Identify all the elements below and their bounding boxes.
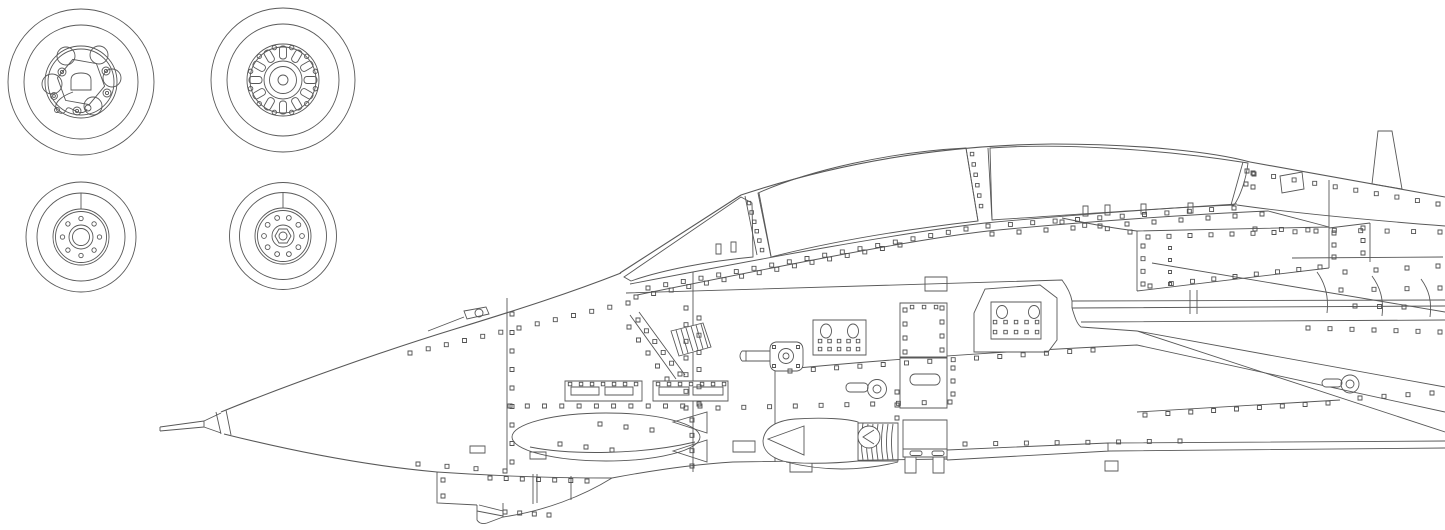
refuel-door-panel [974,285,1057,352]
sheet-background [0,0,1445,530]
masking-instruction-sheet [0,0,1445,530]
masking-diagram-canvas [0,0,1445,530]
ecs-grille-panel [813,320,866,355]
belly-pod [763,418,898,463]
